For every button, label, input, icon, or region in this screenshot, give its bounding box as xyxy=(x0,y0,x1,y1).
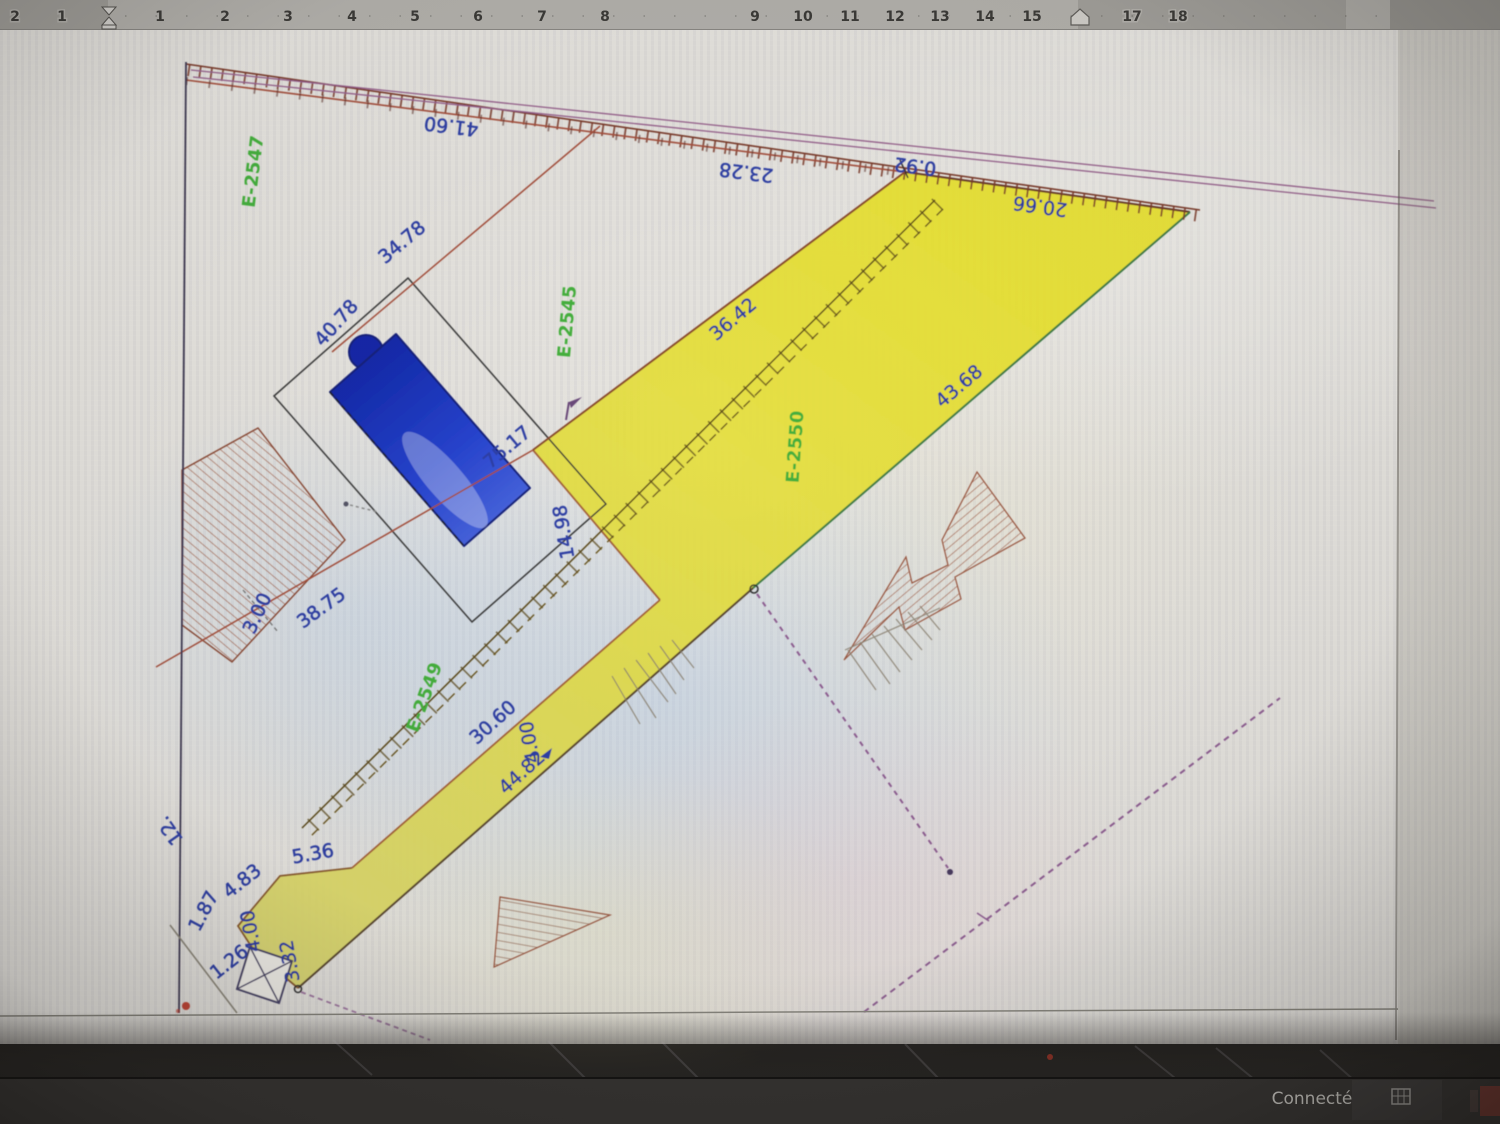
ruler-number: 1 xyxy=(155,9,165,25)
ruler-number: 12 xyxy=(885,9,904,25)
photographed-screen: 41.60 23.28 0.92 20.66 34.78 40.78 36.42… xyxy=(0,0,1500,1124)
ruler-number: 8 xyxy=(600,9,610,25)
ruler-number: 5 xyxy=(410,9,420,25)
ruler-number: 10 xyxy=(793,9,813,25)
bottom-shadow xyxy=(0,1012,1500,1084)
ruler-edge-zone xyxy=(1390,0,1500,30)
ruler-number: 9 xyxy=(750,9,760,25)
view-mode-icon[interactable] xyxy=(1470,1086,1500,1116)
red-mark xyxy=(1047,1054,1053,1060)
word-document-view: 41.60 23.28 0.92 20.66 34.78 40.78 36.42… xyxy=(0,0,1500,1124)
ruler-number: 4 xyxy=(347,9,357,25)
ruler-number: 17 xyxy=(1122,9,1141,25)
document-page[interactable]: 41.60 23.28 0.92 20.66 34.78 40.78 36.42… xyxy=(0,0,1500,1095)
ruler-number: 1 xyxy=(57,9,67,25)
status-bar: Connecté xyxy=(0,1078,1500,1124)
ruler-number: 3 xyxy=(283,9,293,25)
ruler-number: 11 xyxy=(840,9,859,25)
ruler-number: 7 xyxy=(537,9,547,25)
outside-page-area xyxy=(1398,30,1500,1044)
ruler-number: 2 xyxy=(220,9,230,25)
ruler-margin-light-strip xyxy=(1346,0,1392,30)
ruler-number: 13 xyxy=(930,9,949,25)
ruler-number: 15 xyxy=(1022,9,1041,25)
ruler-number: 6 xyxy=(473,9,483,25)
horizontal-ruler[interactable]: 2 1 1 2 3 4 5 6 7 8 9 10 11 12 13 14 15 … xyxy=(0,0,1500,30)
ruler-number: 2 xyxy=(10,9,20,25)
ruler-number: 14 xyxy=(975,9,995,25)
ruler-number: 18 xyxy=(1168,9,1187,25)
connection-status: Connecté xyxy=(1272,1089,1353,1109)
